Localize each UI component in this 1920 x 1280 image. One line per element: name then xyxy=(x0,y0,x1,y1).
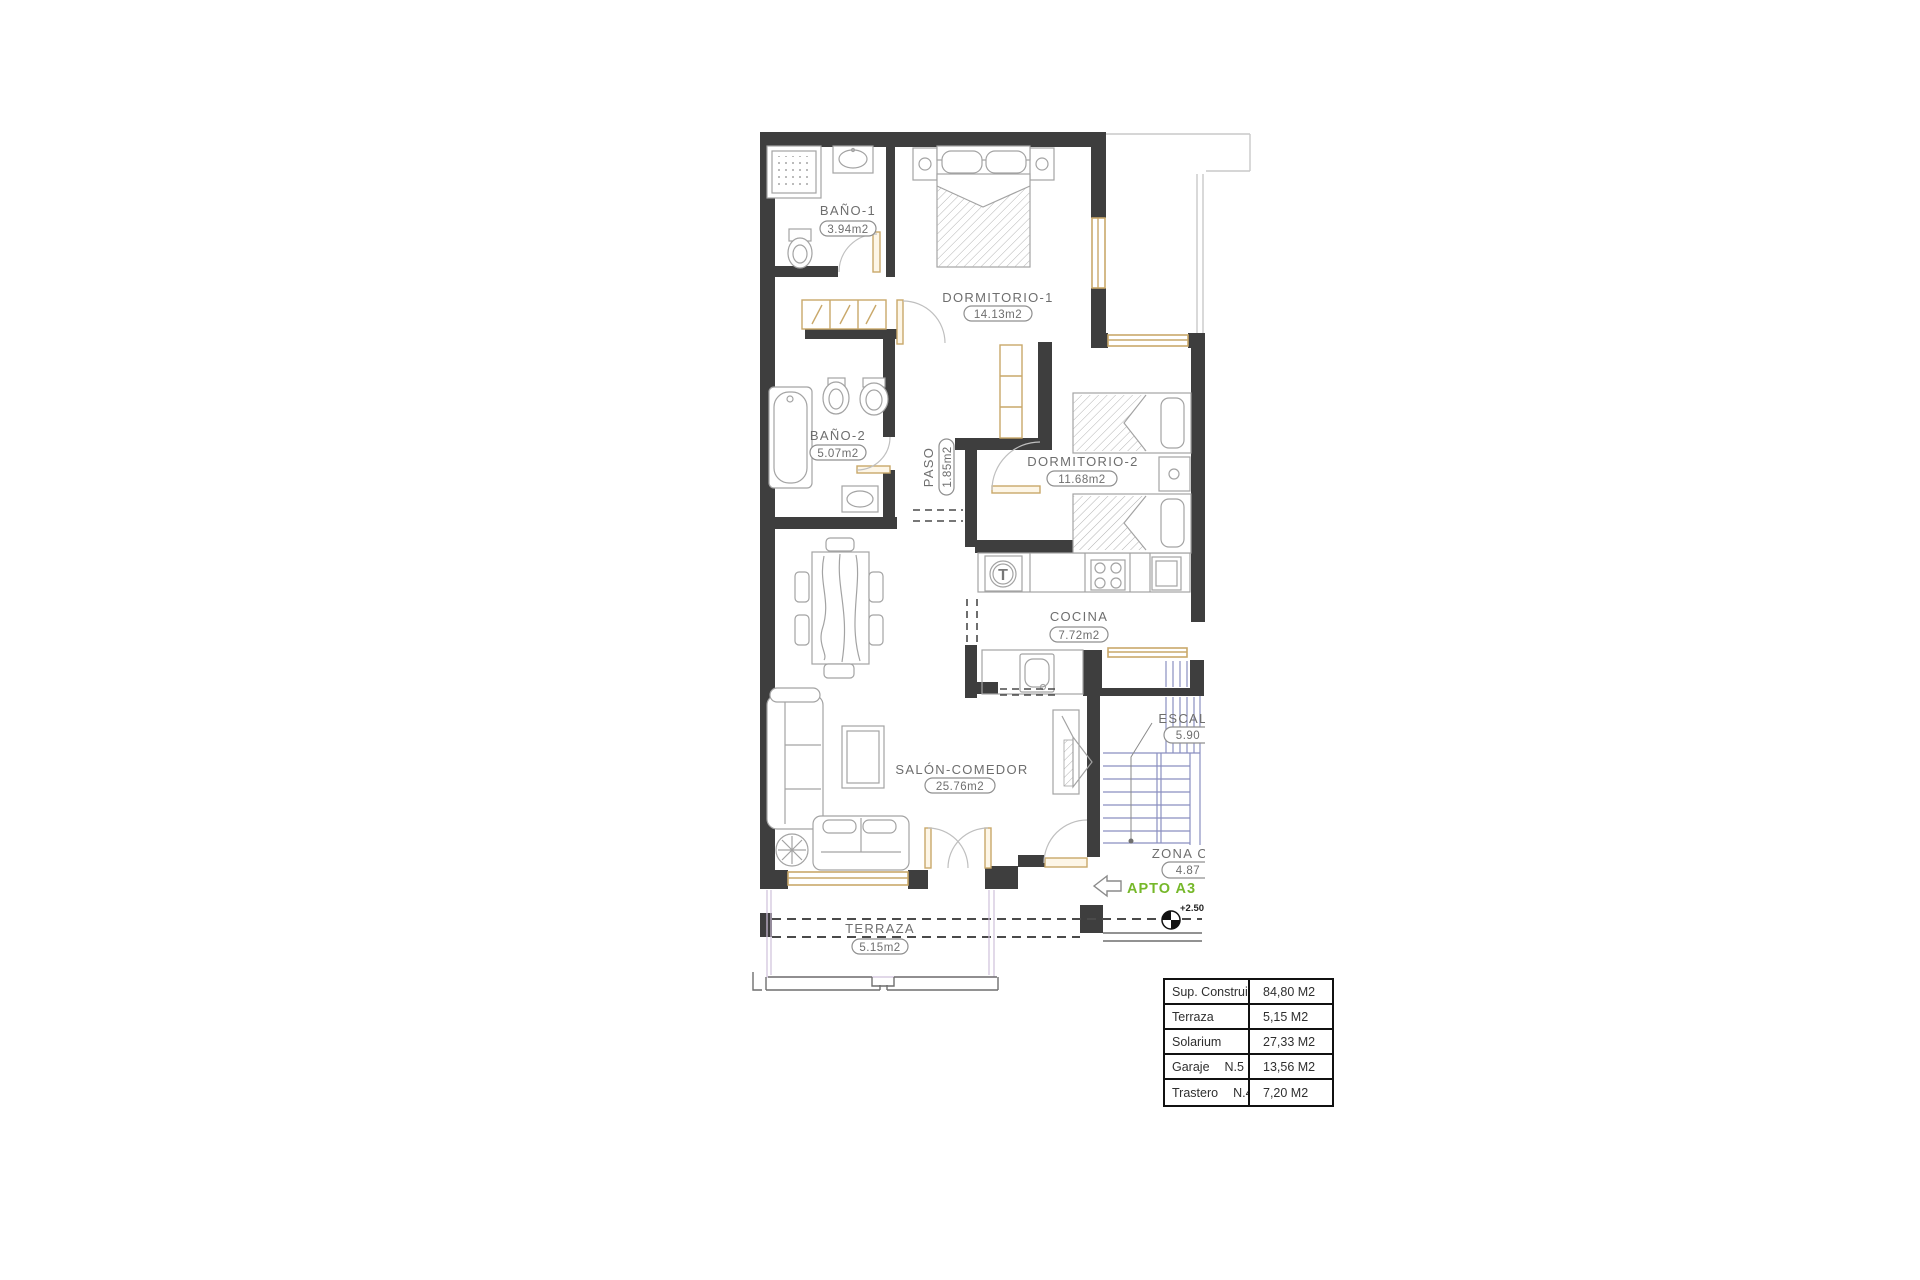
table-row: Sup. Construida 84,80 M2 xyxy=(1165,980,1332,1005)
row-label: Garaje xyxy=(1172,1060,1210,1074)
apartment-tag: APTO A3 xyxy=(1127,881,1196,897)
window-dormitorio2-icon xyxy=(1108,335,1188,346)
room-label-dormitorio2: DORMITORIO-2 xyxy=(1027,454,1138,469)
table-row: Solarium 27,33 M2 xyxy=(1165,1030,1332,1055)
toilet-icon xyxy=(788,229,812,268)
room-area-dormitorio1: 14.13m2 xyxy=(974,309,1022,321)
stove-icon xyxy=(1091,560,1125,590)
room-label-terraza: TERRAZA xyxy=(845,921,915,936)
window-dormitorio1-icon xyxy=(1092,218,1105,288)
room-label-zona-comun: ZONA C xyxy=(1152,846,1208,861)
tv-unit-icon xyxy=(1053,710,1092,794)
floor-plan-page: T xyxy=(0,0,1920,1280)
washing-machine-icon: T xyxy=(985,556,1022,591)
sofa-chaise-icon xyxy=(767,688,823,829)
double-bed-icon xyxy=(913,146,1054,267)
level-value: +2.50 xyxy=(1180,903,1204,914)
floor-plan-svg: T xyxy=(0,0,1920,1280)
room-label-cocina: COCINA xyxy=(1050,609,1108,624)
window-salon-icon xyxy=(788,872,908,885)
row-value: 84,80 M2 xyxy=(1250,980,1332,1003)
row-value: 5,15 M2 xyxy=(1250,1005,1332,1028)
room-label-paso: PASO xyxy=(921,447,936,487)
row-label: Sup. Construida xyxy=(1172,985,1250,999)
room-label-bano2: BAÑO-2 xyxy=(810,428,866,443)
shower-icon xyxy=(767,146,821,198)
adjacent-structure-lines xyxy=(1106,134,1250,333)
room-area-terraza: 5.15m2 xyxy=(859,942,900,954)
wardrobe-paso-icon xyxy=(1000,345,1022,438)
sofa-two-seat-icon xyxy=(813,816,909,870)
bathtub-icon xyxy=(769,387,812,488)
zona-comun-railing xyxy=(1103,933,1202,941)
french-doors-icon xyxy=(925,828,991,868)
room-area-bano1: 3.94m2 xyxy=(827,224,868,236)
table-row: Garaje N.5 13,56 M2 xyxy=(1165,1055,1332,1080)
salon-furniture xyxy=(767,538,1092,870)
dining-table-icon xyxy=(795,538,883,678)
area-summary-table: Sup. Construida 84,80 M2 Terraza 5,15 M2… xyxy=(1163,978,1334,1107)
room-label-bano1: BAÑO-1 xyxy=(820,203,876,218)
room-label-salon: SALÓN-COMEDOR xyxy=(895,762,1028,777)
room-area-paso: 1.85m2 xyxy=(942,446,954,487)
door-bano1-icon xyxy=(839,232,880,272)
room-area-cocina: 7.72m2 xyxy=(1058,630,1099,642)
room-area-salon: 25.76m2 xyxy=(936,781,984,793)
toilet2-icon xyxy=(860,378,888,415)
row-value: 7,20 M2 xyxy=(1250,1080,1332,1105)
row-label: Solarium xyxy=(1172,1035,1221,1049)
room-area-dormitorio2: 11.68m2 xyxy=(1058,474,1105,486)
fridge-icon xyxy=(1152,557,1181,590)
table-row: Trastero N.4 7,20 M2 xyxy=(1165,1080,1332,1105)
row-label: Terraza xyxy=(1172,1010,1214,1024)
row-label: Trastero xyxy=(1172,1086,1218,1100)
room-area-bano2: 5.07m2 xyxy=(817,448,858,460)
wardrobe-dormitorio1-icon xyxy=(802,300,886,329)
row-value: 13,56 M2 xyxy=(1250,1055,1332,1078)
window-landing-icon xyxy=(1108,648,1187,657)
washer-symbol: T xyxy=(998,567,1008,584)
stair-direction-dot xyxy=(1129,839,1134,844)
level-marker-icon: +2.50 xyxy=(1162,903,1204,929)
sink-icon xyxy=(833,146,873,173)
room-label-escalera: ESCAL xyxy=(1158,711,1207,726)
table-row: Terraza 5,15 M2 xyxy=(1165,1005,1332,1030)
room-area-zona-comun: 4.87 xyxy=(1176,865,1200,877)
coffee-table-icon xyxy=(842,726,884,788)
sink2-icon xyxy=(842,486,878,512)
dishwasher-icon xyxy=(1020,654,1054,692)
row-number: N.5 xyxy=(1225,1060,1244,1074)
room-label-dormitorio1: DORMITORIO-1 xyxy=(942,290,1053,305)
room-area-escalera: 5.90 xyxy=(1176,730,1200,742)
entry-tag: APTO A3 xyxy=(1094,876,1196,897)
door-dormitorio1-icon xyxy=(897,300,945,344)
entry-arrow-icon xyxy=(1094,876,1121,896)
bidet-icon xyxy=(823,378,849,414)
row-value: 27,33 M2 xyxy=(1250,1030,1332,1053)
row-number: N.4 xyxy=(1233,1086,1250,1100)
side-table-plant-icon xyxy=(776,834,808,866)
door-entry-icon xyxy=(1044,820,1087,867)
